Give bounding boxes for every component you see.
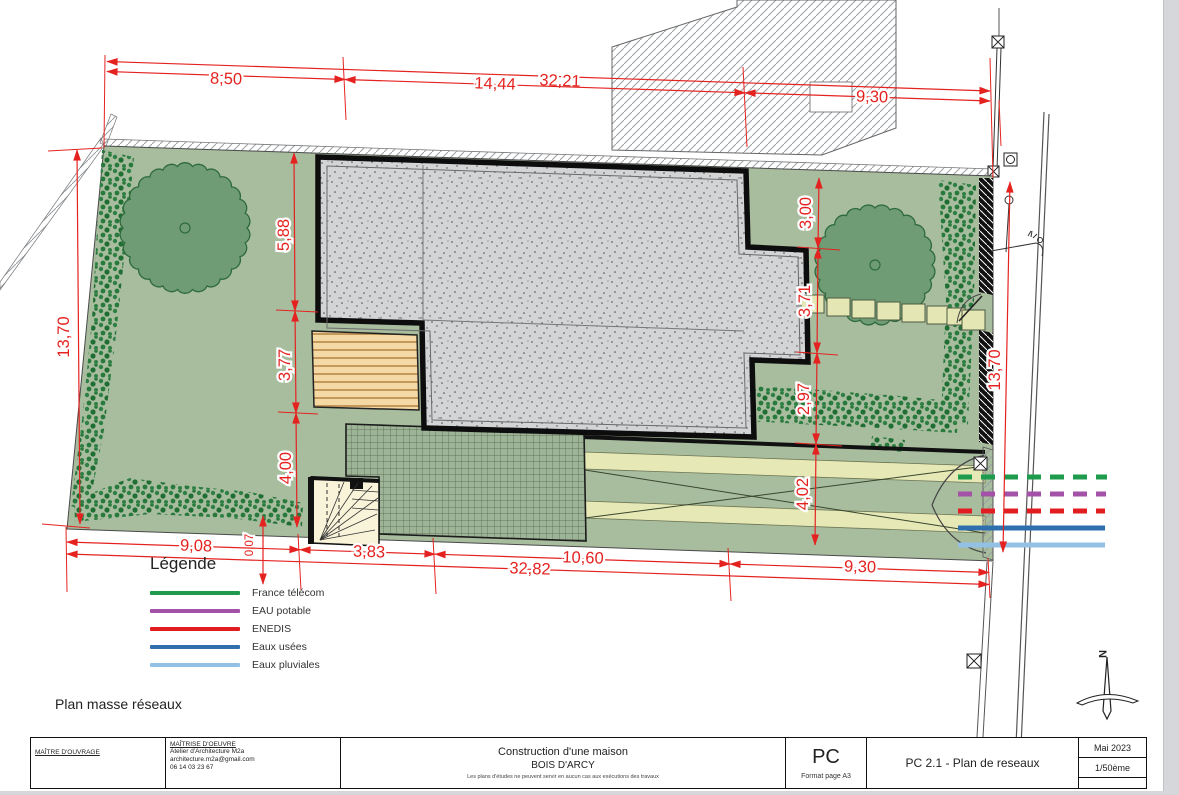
architect-name: Atelier d'Architecture M2a — [170, 748, 336, 756]
dim-377: 3,77 — [276, 349, 294, 381]
dim-1060: 10,60 — [562, 548, 604, 567]
terrace — [346, 424, 586, 541]
title-block-date-scale: Mai 2023 1/50ème — [1079, 738, 1146, 788]
title-block-sheet-name: PC 2.1 - Plan de reseaux — [867, 738, 1079, 788]
wood-deck — [312, 331, 419, 410]
legend-item-france-telecom: France télécom — [150, 584, 324, 602]
north-arrow: N — [1077, 650, 1138, 719]
legend-item-eaux-pluviales: Eaux pluviales — [150, 656, 324, 674]
dim-bottom-930: 9,30 — [844, 557, 877, 576]
legend-swatch — [150, 609, 240, 613]
title-block-doc-type: PC Format page A3 — [786, 738, 867, 788]
dim-3282: 32,82 — [509, 559, 551, 578]
page-edge-bottom — [0, 791, 1179, 795]
dim-left-1370: 13,70 — [55, 316, 73, 357]
north-label: N — [1096, 650, 1108, 658]
neighbor-building — [612, 0, 896, 155]
legend-title: Légende — [150, 554, 324, 574]
legend-swatch — [150, 591, 240, 595]
utility-marker-box-x — [992, 36, 1004, 48]
stair-newel — [350, 478, 363, 489]
stair — [311, 477, 379, 546]
dim-right-1370: 13,70 — [986, 349, 1004, 390]
architect-email: architecture.m2a@gmail.com — [170, 756, 336, 764]
title-block-project: Construction d'une maison BOIS D'ARCY Le… — [341, 738, 786, 788]
street-marker-box-x — [967, 654, 981, 668]
dim-top-850: 8,50 — [210, 69, 243, 88]
street-lamp-symbol — [991, 196, 1043, 256]
dim-400: 4,00 — [277, 452, 295, 484]
plan-title: Plan masse réseaux — [55, 696, 182, 712]
dim-297: 2,97 — [795, 383, 813, 415]
dim-300: 3,00 — [797, 197, 815, 229]
dim-908: 9,08 — [180, 536, 213, 555]
utility-marker-box-circle — [1004, 153, 1017, 166]
dim-588: 5,88 — [275, 219, 293, 251]
disclaimer: Les plans d'études ne peuvent servir en … — [467, 774, 659, 780]
dim-top-total: 32,21 — [539, 71, 581, 90]
project-city: BOIS D'ARCY — [531, 760, 595, 771]
legend: Légende France télécom EAU potable ENEDI… — [150, 554, 324, 674]
dim-top-1444: 14,44 — [474, 74, 516, 93]
corner-marker-box-x — [988, 166, 999, 177]
gate-post-box-x — [974, 457, 987, 470]
dim-007: 0,07 — [244, 534, 256, 556]
legend-swatch — [150, 645, 240, 649]
page-format: Format page A3 — [801, 773, 851, 780]
page-edge-right — [1163, 0, 1179, 795]
dim-402: 4,02 — [794, 478, 812, 510]
legend-item-eau-potable: EAU potable — [150, 602, 324, 620]
project-title: Construction d'une maison — [498, 746, 628, 758]
sheet-date: Mai 2023 — [1079, 738, 1146, 758]
legend-swatch — [150, 627, 240, 631]
site-plan-drawing: 32,21 8,50 14,44 9,30 13,70 5,88 3,77 4,… — [0, 0, 1179, 795]
title-block-maitre-ouvrage: MAÎTRE D'OUVRAGE — [31, 738, 166, 788]
architect-phone: 06 14 03 23 67 — [170, 764, 336, 772]
dim-top-930: 9,30 — [856, 87, 889, 106]
title-block: MAÎTRE D'OUVRAGE MAÎTRISE D'OEUVRE Ateli… — [30, 737, 1147, 789]
drawing-sheet: 32,21 8,50 14,44 9,30 13,70 5,88 3,77 4,… — [0, 0, 1179, 795]
legend-swatch — [150, 663, 240, 667]
dim-383: 3,83 — [353, 542, 386, 561]
dim-371: 3,71 — [796, 285, 814, 317]
tree-left — [120, 163, 250, 294]
legend-item-eaux-usees: Eaux usées — [150, 638, 324, 656]
sheet-scale: 1/50ème — [1079, 759, 1146, 778]
title-block-maitrise-oeuvre: MAÎTRISE D'OEUVRE Atelier d'Architecture… — [166, 738, 341, 788]
doc-type: PC — [812, 746, 840, 769]
legend-item-enedis: ENEDIS — [150, 620, 324, 638]
